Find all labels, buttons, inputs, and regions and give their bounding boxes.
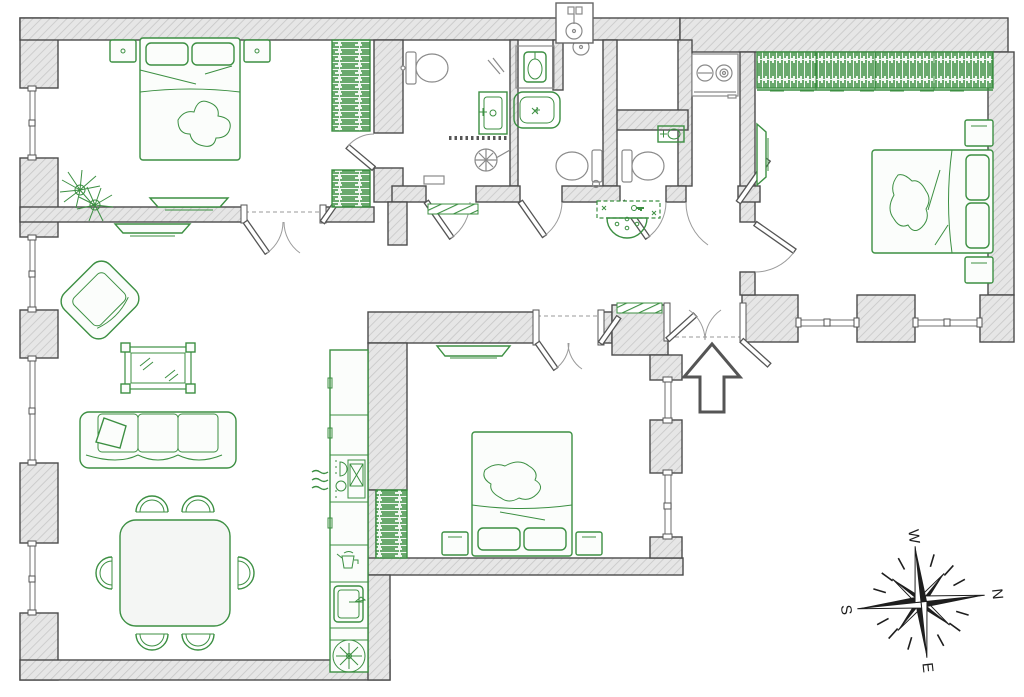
ensuite-door <box>346 134 375 170</box>
tv-icon <box>437 346 510 358</box>
chair <box>136 496 168 512</box>
utility-room <box>692 54 738 98</box>
nightstand <box>576 532 602 555</box>
bedroom-1 <box>60 38 370 221</box>
vent-fan-icon <box>333 640 365 672</box>
nightstand <box>244 40 270 62</box>
double-bed <box>872 150 993 253</box>
mirror-marks <box>488 58 504 74</box>
wardrobe <box>332 170 370 207</box>
light-shaft <box>556 3 593 43</box>
dining-table <box>120 520 230 626</box>
dining-set <box>96 496 254 650</box>
nightstand <box>965 257 993 283</box>
armchair <box>56 256 144 344</box>
mirror-table <box>121 343 195 393</box>
glass-marks <box>140 358 178 381</box>
entrance-arrow <box>684 344 740 412</box>
window <box>663 377 672 423</box>
washing-machine-icon <box>692 54 738 98</box>
floor-plan-canvas: N E S W <box>0 0 1024 697</box>
window <box>28 86 36 160</box>
chair <box>96 557 112 589</box>
tv-icon <box>115 224 190 236</box>
compass-label-e: E <box>918 662 936 674</box>
double-bed <box>140 38 240 160</box>
doormat <box>428 204 478 214</box>
chair <box>238 557 254 589</box>
tv-icon <box>757 124 768 185</box>
shower-head-icon <box>475 149 510 171</box>
wardrobe <box>376 490 407 558</box>
faucet <box>660 131 667 138</box>
vanity-basin <box>479 92 507 134</box>
window <box>28 541 36 615</box>
wardrobe-full-width <box>757 52 993 91</box>
chair <box>182 634 214 650</box>
wardrobe <box>332 40 370 131</box>
sofa <box>80 412 236 468</box>
window <box>796 318 859 327</box>
compass-main-points <box>851 540 990 665</box>
toilet-icon <box>556 150 602 182</box>
bedroom2-door <box>754 222 796 272</box>
nightstand <box>110 40 136 62</box>
nightstand <box>442 532 468 555</box>
steam-marks <box>312 471 328 490</box>
bedroom-3 <box>376 346 602 558</box>
floor-plan-drawing: N E S W <box>0 0 1024 697</box>
cabinet-run <box>330 350 368 672</box>
faucet <box>479 108 487 116</box>
chair <box>136 634 168 650</box>
living-dining-room <box>56 224 254 650</box>
toilet-icon <box>401 52 448 84</box>
compass-label-s: S <box>837 604 855 616</box>
nightstand <box>965 120 993 146</box>
washbasin-niche <box>516 46 554 88</box>
hallway <box>597 201 662 313</box>
chair <box>182 496 214 512</box>
double-bed <box>472 432 572 556</box>
shower-room-door <box>518 200 562 237</box>
window <box>28 356 36 465</box>
window <box>913 318 982 327</box>
compass-label-w: W <box>904 528 922 545</box>
bench <box>424 176 444 184</box>
wc <box>622 126 684 182</box>
window <box>28 235 36 312</box>
window <box>663 470 672 539</box>
console-table <box>597 201 660 218</box>
toilet-icon <box>622 150 664 182</box>
entrance-doormat <box>617 303 662 313</box>
kitchen-run <box>312 350 368 672</box>
compass-label-n: N <box>988 588 1006 601</box>
compass-rose: N E S W <box>830 520 1013 681</box>
bathtub <box>514 92 560 128</box>
drain <box>532 107 540 114</box>
